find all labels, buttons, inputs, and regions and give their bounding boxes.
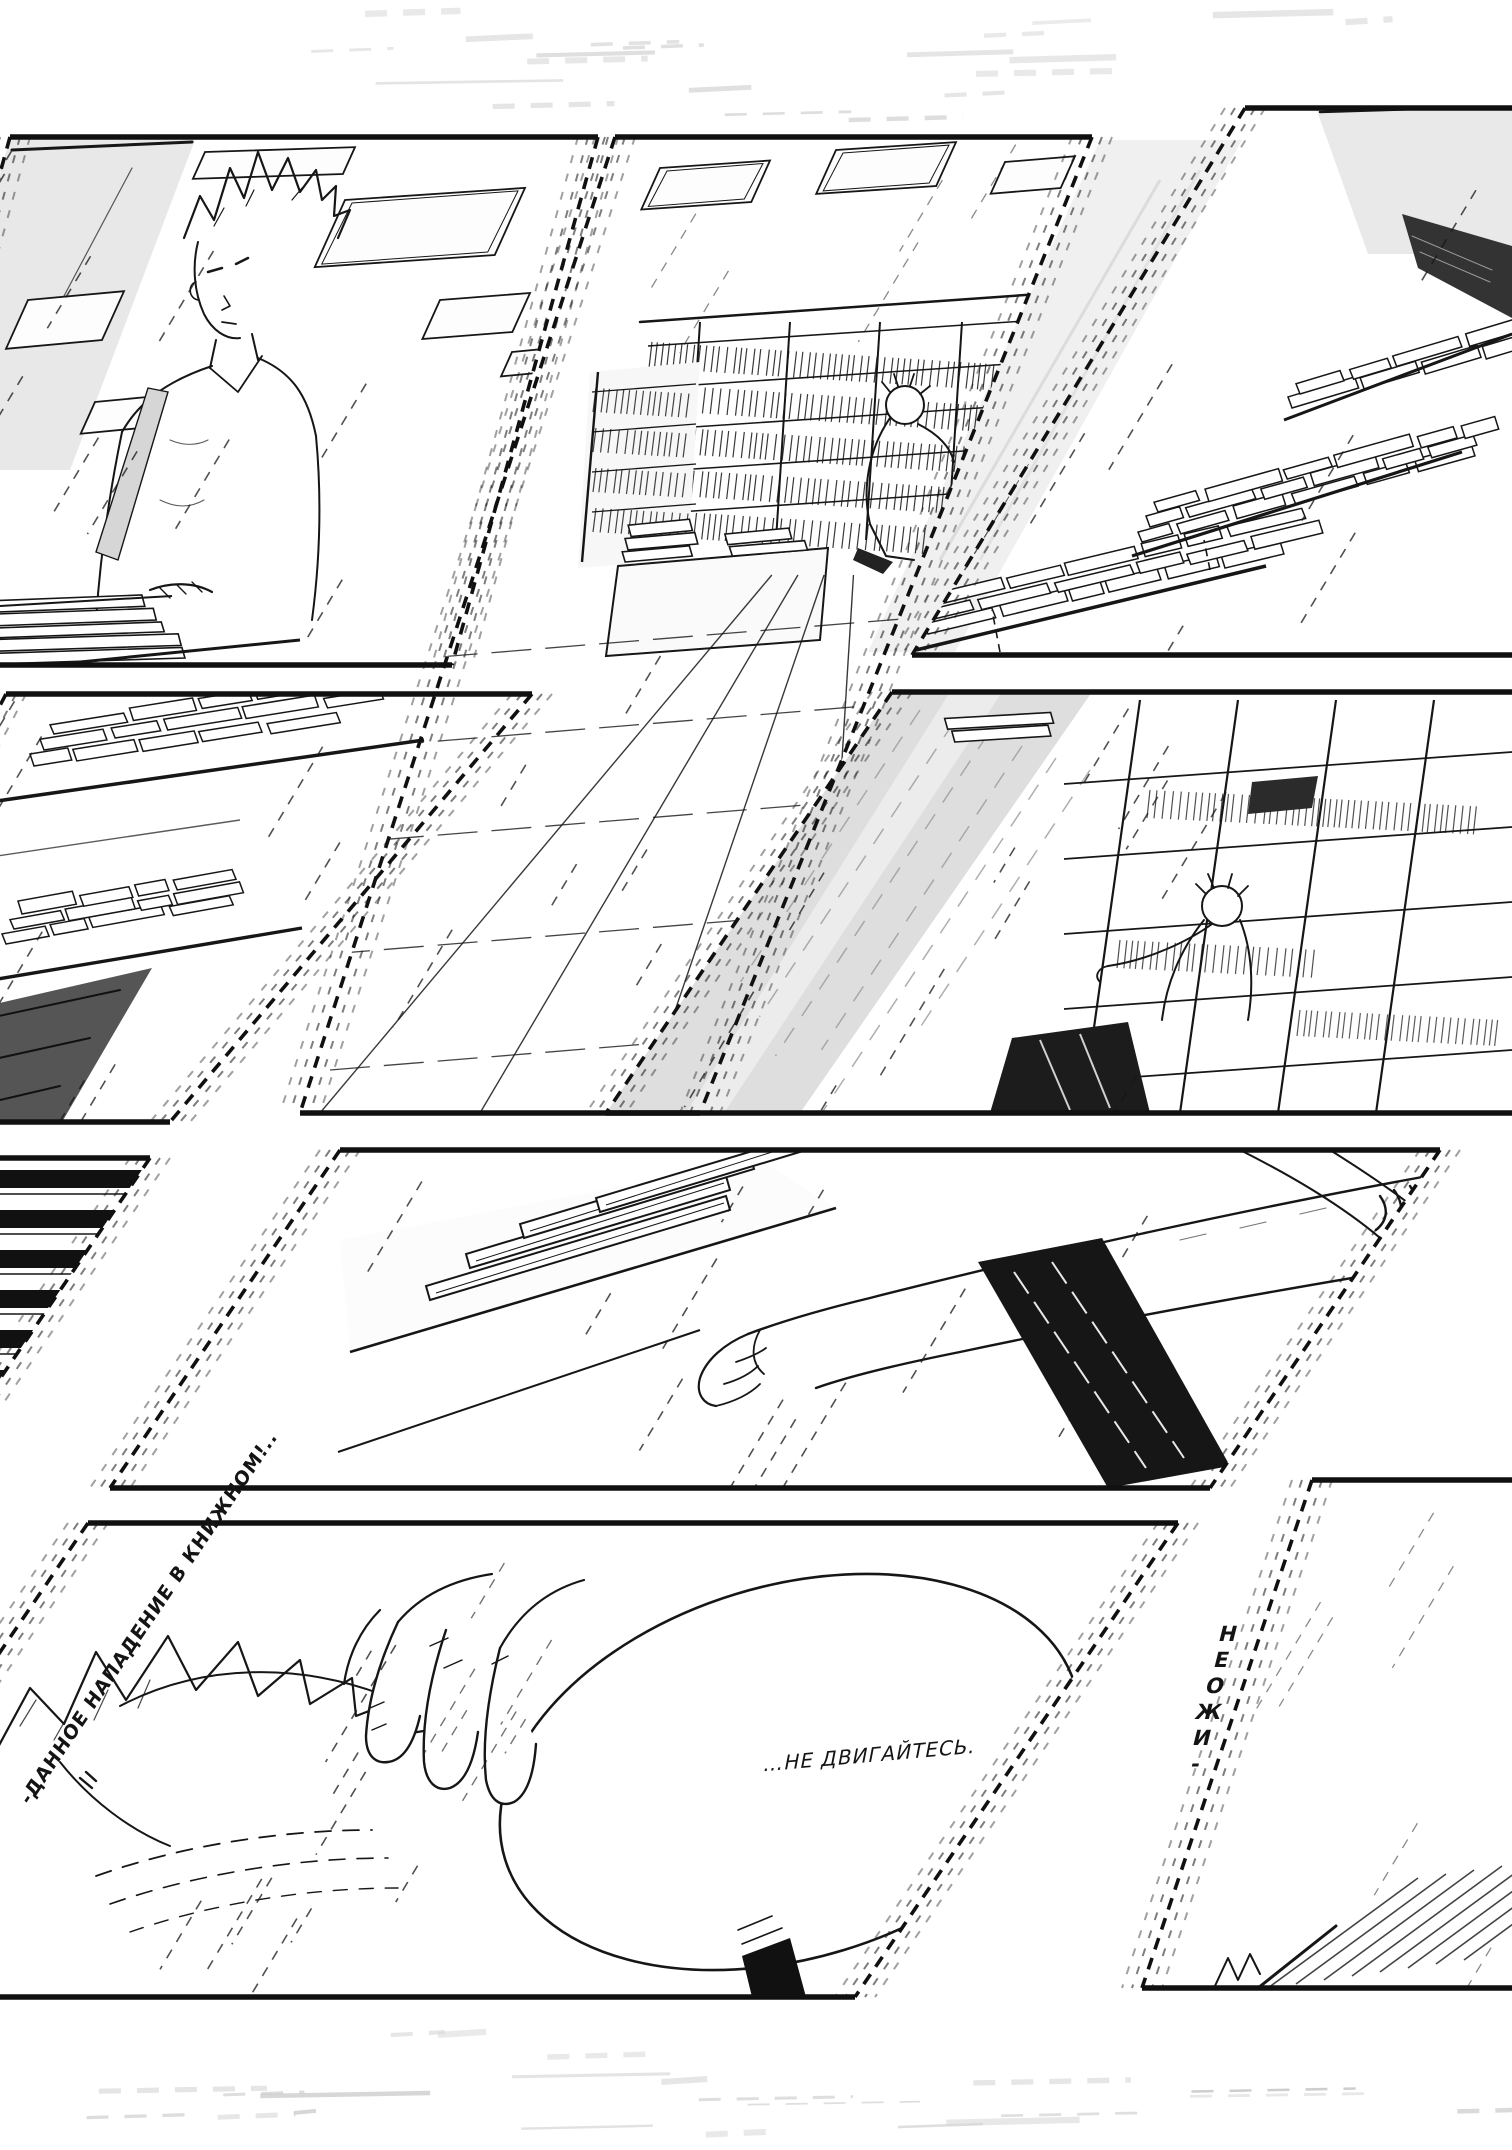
panel-grab-and-bubble — [0, 1507, 1129, 2037]
manga-page: -ДАННОЕ НАПАДЕНИЕ В КНИЖНОМ!.. НЕОЖИ- …Н… — [0, 0, 1512, 2150]
manga-artwork — [0, 0, 1512, 2150]
panel-book-piles — [0, 670, 424, 1152]
panel-hand-taking-book — [338, 1138, 1460, 1516]
panel-corner-sleeve — [1162, 1513, 1512, 2054]
panel-dark-spines — [0, 1170, 143, 1549]
panel-clerk-counter — [0, 137, 558, 676]
